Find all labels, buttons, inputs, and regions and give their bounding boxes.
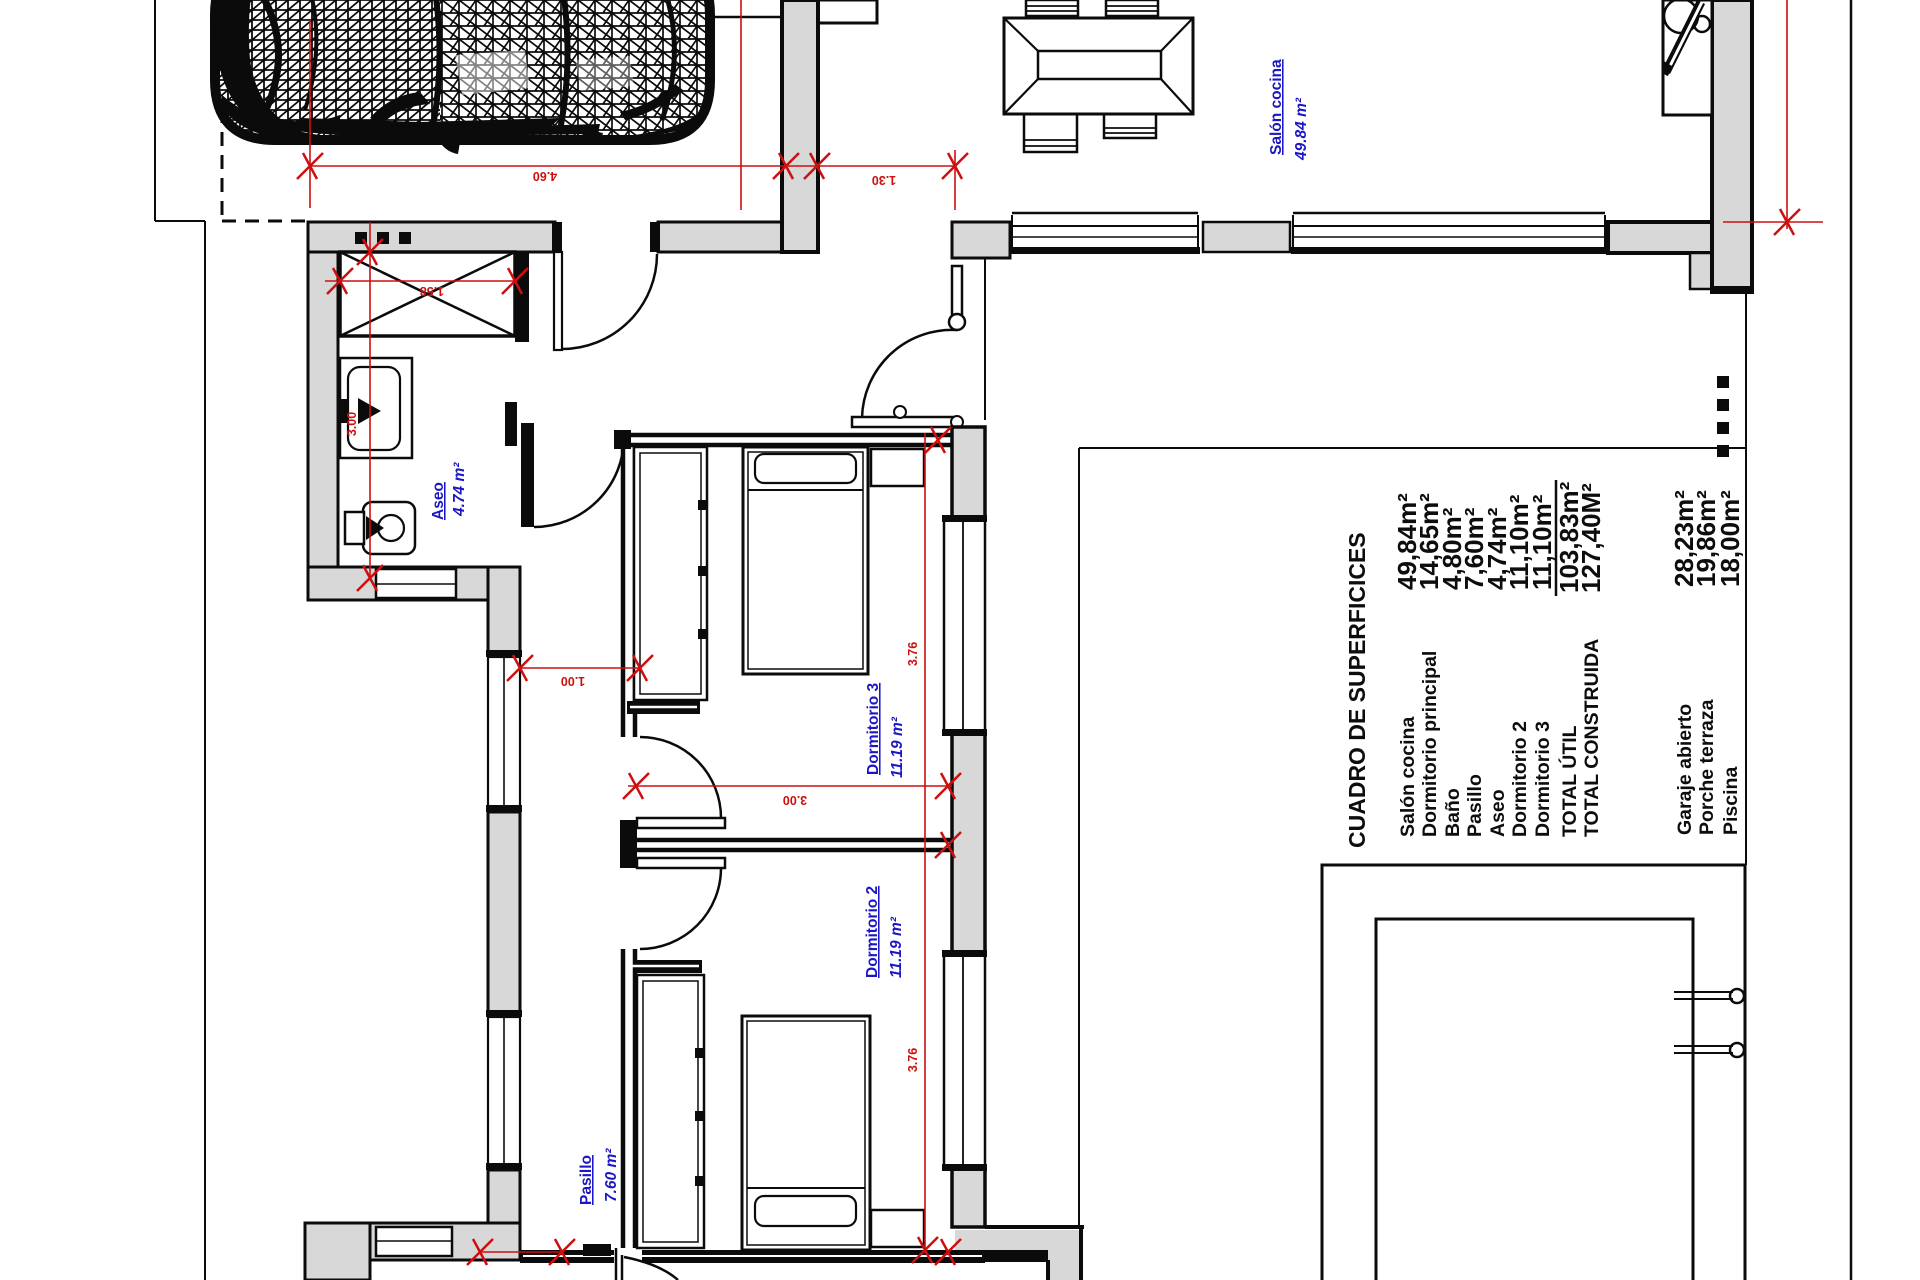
svg-text:Porche terraza: Porche terraza — [1696, 699, 1718, 835]
svg-text:11.19 m²: 11.19 m² — [888, 916, 905, 978]
svg-text:Pasillo: Pasillo — [1464, 774, 1486, 837]
svg-text:3.76: 3.76 — [906, 642, 920, 666]
svg-text:4.74 m²: 4.74 m² — [451, 462, 468, 517]
svg-text:3.00: 3.00 — [783, 793, 807, 807]
svg-text:Pasillo: Pasillo — [578, 1155, 595, 1205]
svg-text:1.00: 1.00 — [561, 674, 585, 688]
svg-text:Salón cocina: Salón cocina — [1397, 717, 1419, 837]
svg-text:1.58: 1.58 — [420, 284, 444, 298]
svg-text:4.60: 4.60 — [533, 169, 557, 183]
svg-text:18,00m²: 18,00m² — [1715, 490, 1745, 587]
svg-text:7.60 m²: 7.60 m² — [603, 1148, 620, 1202]
svg-text:11,10m²: 11,10m² — [1527, 494, 1557, 590]
svg-text:Baño: Baño — [1442, 788, 1464, 837]
svg-text:TOTAL CONSTRUIDA: TOTAL CONSTRUIDA — [1581, 639, 1603, 837]
svg-text:CUADRO DE SUPERFICICES: CUADRO DE SUPERFICICES — [1344, 532, 1370, 848]
svg-text:127,40M²: 127,40M² — [1576, 483, 1606, 593]
svg-text:Dormitorio 2: Dormitorio 2 — [1509, 721, 1531, 837]
svg-text:Dormitorio principal: Dormitorio principal — [1419, 651, 1441, 837]
svg-text:Piscina: Piscina — [1720, 767, 1742, 835]
svg-text:3.76: 3.76 — [906, 1048, 920, 1072]
svg-text:Dormitorio 3: Dormitorio 3 — [1532, 721, 1554, 837]
svg-text:1.30: 1.30 — [872, 173, 896, 187]
svg-text:Dormitorio 3: Dormitorio 3 — [865, 682, 882, 775]
svg-text:3.00: 3.00 — [345, 412, 359, 436]
svg-text:Aseo: Aseo — [430, 482, 447, 520]
svg-text:11.19 m²: 11.19 m² — [889, 716, 906, 778]
svg-text:Salón cocina: Salón cocina — [1268, 59, 1285, 155]
svg-text:49.84 m²: 49.84 m² — [1293, 97, 1310, 161]
svg-text:Garaje abierto: Garaje abierto — [1674, 704, 1696, 835]
svg-text:Dormitorio 2: Dormitorio 2 — [864, 886, 881, 978]
svg-text:Aseo: Aseo — [1487, 789, 1509, 837]
svg-text:TOTAL ÚTIL: TOTAL ÚTIL — [1557, 725, 1581, 837]
